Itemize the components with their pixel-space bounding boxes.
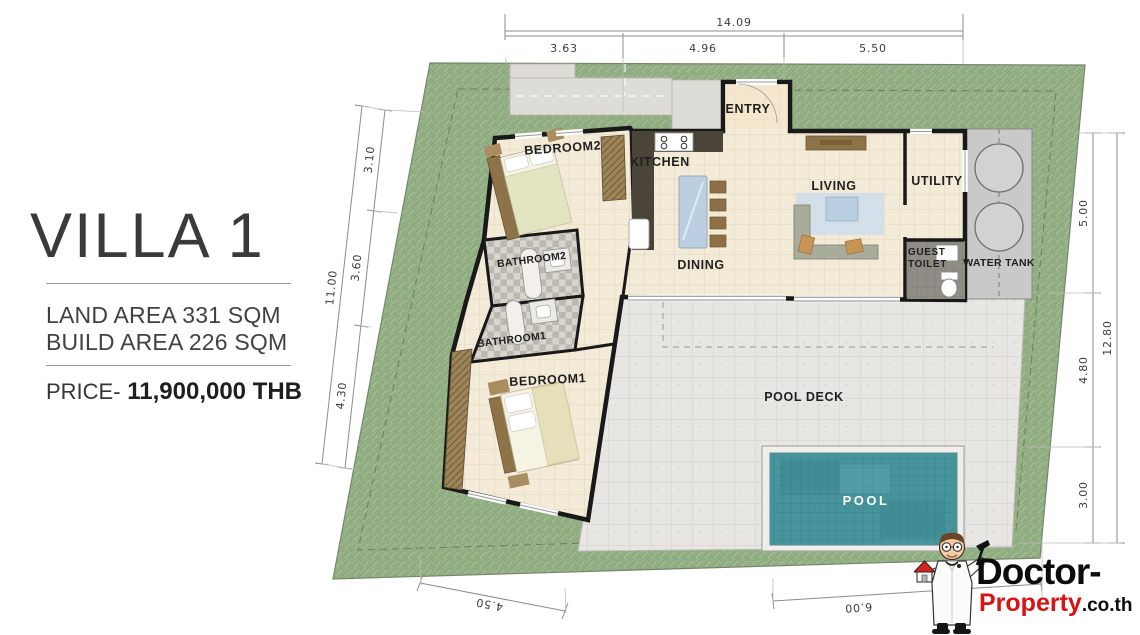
page-title: VILLA 1 — [30, 200, 265, 272]
dim-right-total: 12.80 — [1101, 320, 1114, 356]
logo-brand-line2: Property.co.th — [979, 589, 1132, 618]
dim-top-2: 4.96 — [689, 42, 717, 55]
stove — [655, 133, 693, 151]
water-tank-1 — [975, 144, 1023, 192]
guest-toilet-label-2: TOILET — [908, 259, 947, 270]
dim-right-1: 5.00 — [1077, 199, 1090, 227]
dim-top-3: 5.50 — [859, 42, 887, 55]
logo-brand-suffix: .co.th — [1082, 595, 1133, 616]
coffee-table — [826, 197, 858, 221]
logo-brand-red: Property — [979, 589, 1082, 617]
house-icon — [914, 561, 935, 582]
water-tank-area — [966, 129, 1032, 299]
dim-left-3: 4.30 — [334, 381, 350, 410]
kitchen-sink — [629, 219, 649, 249]
entry-label: ENTRY — [726, 102, 771, 116]
bedroom2-wardrobe — [601, 135, 626, 201]
living-label: LIVING — [811, 179, 856, 193]
guest-toilet-label-1: GUEST — [908, 247, 945, 258]
kitchen-label: KITCHEN — [630, 155, 690, 169]
dim-left-total: 11.00 — [323, 269, 340, 306]
pool-label: POOL — [843, 493, 890, 508]
price-text: PRICE- 11,900,000 THB — [46, 378, 302, 406]
price-value: 11,900,000 THB — [121, 378, 302, 405]
water-tank-2 — [975, 203, 1023, 251]
dim-right-2: 4.80 — [1077, 356, 1090, 384]
logo-brand: Doctor- — [976, 551, 1101, 593]
dim-right-3: 3.00 — [1077, 481, 1090, 509]
dim-top-total: 14.09 — [716, 16, 752, 29]
area-info: LAND AREA 331 SQM BUILD AREA 226 SQM — [46, 302, 287, 356]
water-tank-label: WATER TANK — [963, 257, 1035, 269]
land-area-text: LAND AREA 331 SQM — [46, 302, 287, 329]
divider — [46, 365, 291, 366]
divider — [46, 283, 291, 284]
price-label: PRICE- — [46, 379, 121, 404]
dim-left-1: 3.10 — [362, 145, 378, 174]
pool-deck-label: POOL DECK — [764, 390, 844, 404]
floorplan-page: ENTRY KITCHEN DINING LIVING UTILITY GUES… — [0, 0, 1140, 635]
build-area-text: BUILD AREA 226 SQM — [46, 329, 287, 356]
dining-label: DINING — [677, 258, 724, 272]
dim-bottom-2: 6.00 — [844, 600, 873, 615]
utility-label: UTILITY — [911, 174, 962, 188]
dim-left-2: 3.60 — [349, 253, 365, 282]
dim-top-1: 3.63 — [550, 42, 578, 55]
